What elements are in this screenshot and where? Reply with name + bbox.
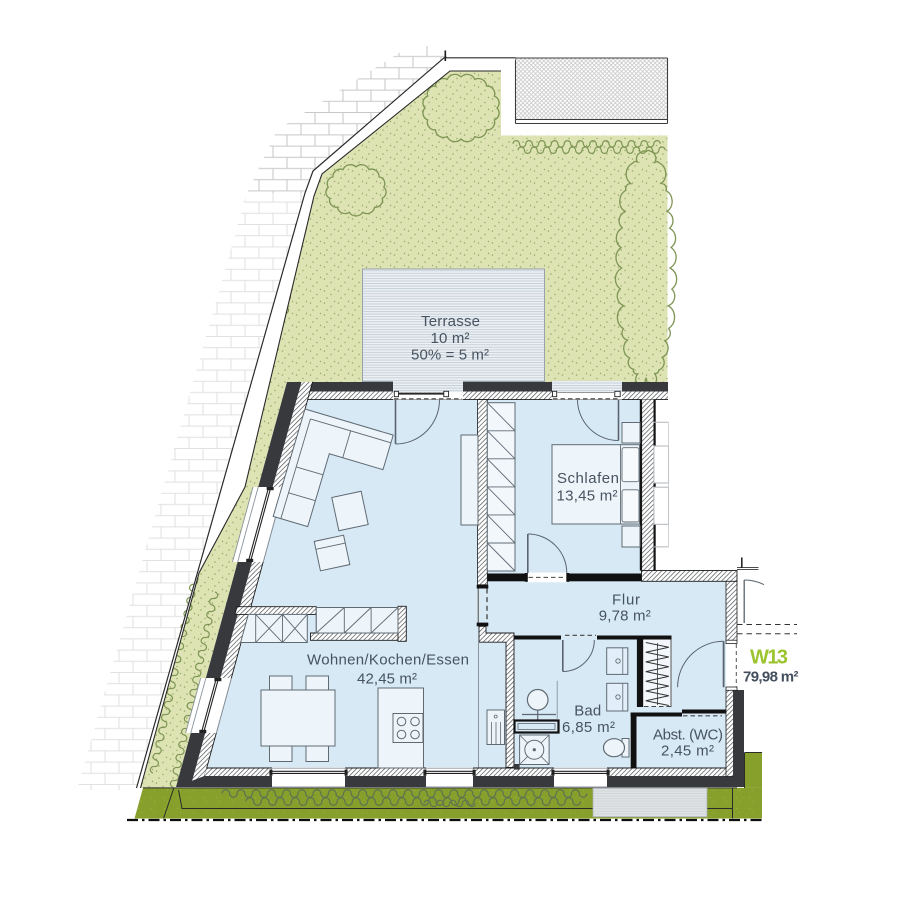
svg-text:50% = 5 m²: 50% = 5 m² — [411, 347, 489, 364]
svg-text:10 m²: 10 m² — [431, 330, 470, 347]
svg-text:Bad: Bad — [574, 702, 601, 719]
svg-text:Terrasse: Terrasse — [421, 313, 480, 330]
svg-text:9,78 m²: 9,78 m² — [599, 608, 651, 625]
svg-text:Wohnen/Kochen/Essen: Wohnen/Kochen/Essen — [307, 652, 469, 669]
svg-text:Flur: Flur — [612, 592, 640, 609]
svg-text:42,45 m²: 42,45 m² — [357, 671, 417, 688]
svg-text:Schlafen: Schlafen — [557, 470, 619, 487]
svg-text:Abst. (WC): Abst. (WC) — [653, 727, 723, 744]
svg-text:2,45 m²: 2,45 m² — [661, 743, 714, 760]
svg-text:6,85 m²: 6,85 m² — [562, 719, 615, 736]
svg-text:13,45 m²: 13,45 m² — [557, 488, 618, 505]
svg-text:W13: W13 — [750, 647, 788, 669]
svg-text:79,98 m²: 79,98 m² — [743, 669, 799, 686]
